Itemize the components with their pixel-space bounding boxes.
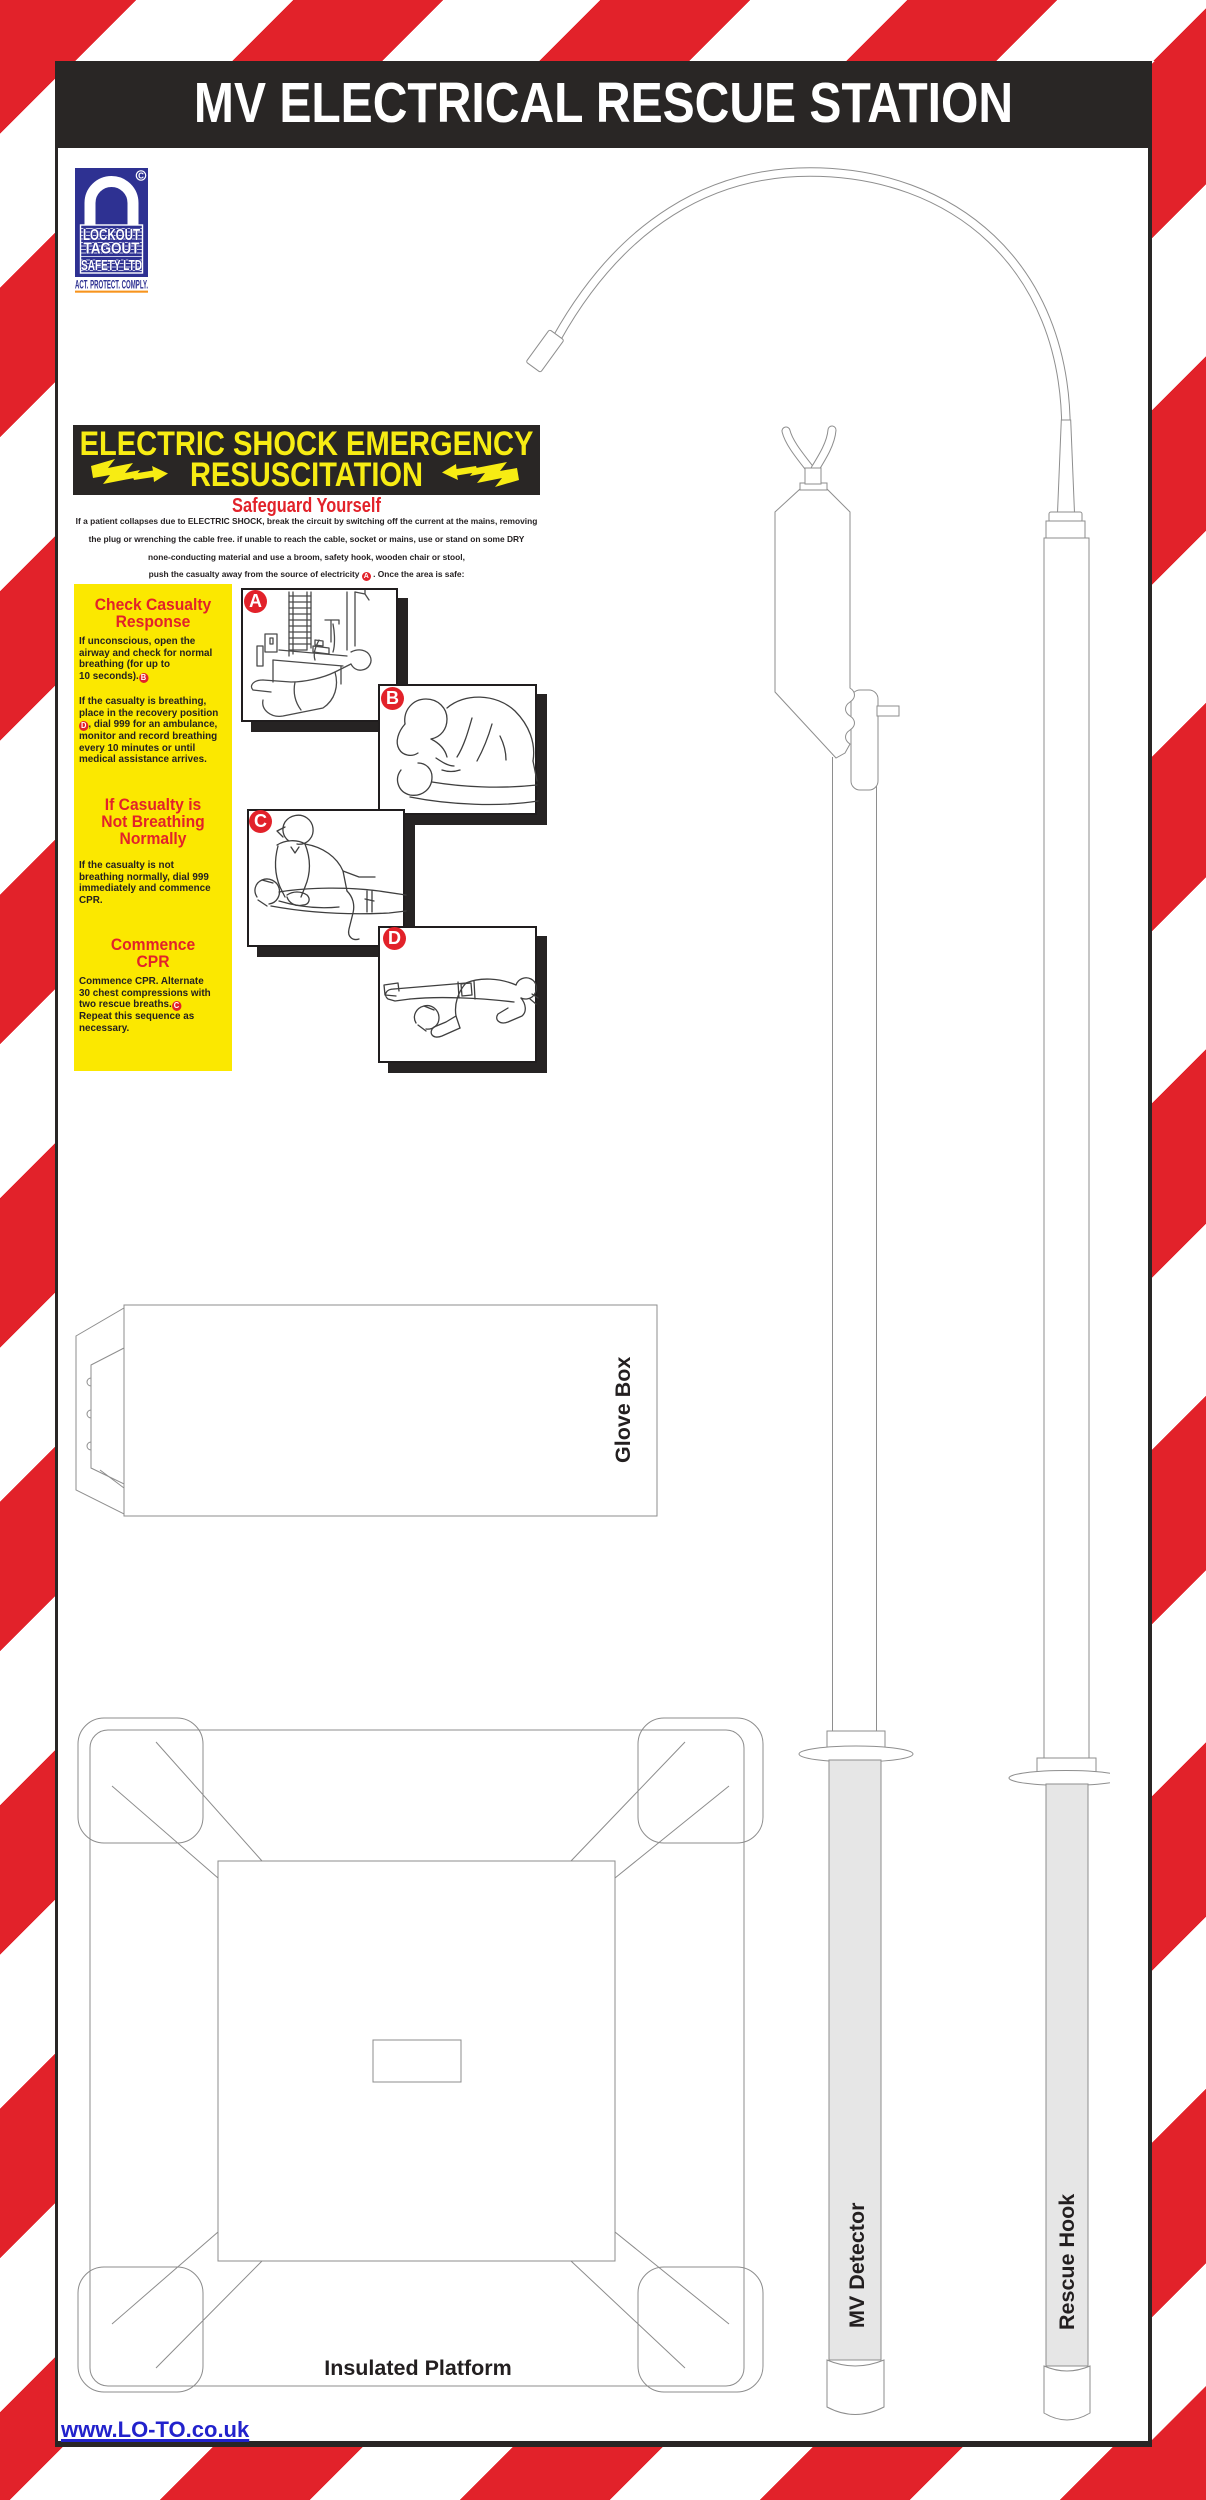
svg-text:TAGOUT: TAGOUT [84,240,140,257]
svg-text:ACT. PROTECT. COMPLY.: ACT. PROTECT. COMPLY. [75,280,148,292]
svg-text:Glove Box: Glove Box [611,1357,635,1463]
svg-text:Insulated Platform: Insulated Platform [324,2356,512,2380]
svg-text:Rescue Hook: Rescue Hook [1055,2194,1079,2330]
svg-text:SAFETY LTD: SAFETY LTD [81,258,142,274]
svg-text:C: C [138,171,144,180]
svg-text:MV Detector: MV Detector [845,2202,869,2328]
